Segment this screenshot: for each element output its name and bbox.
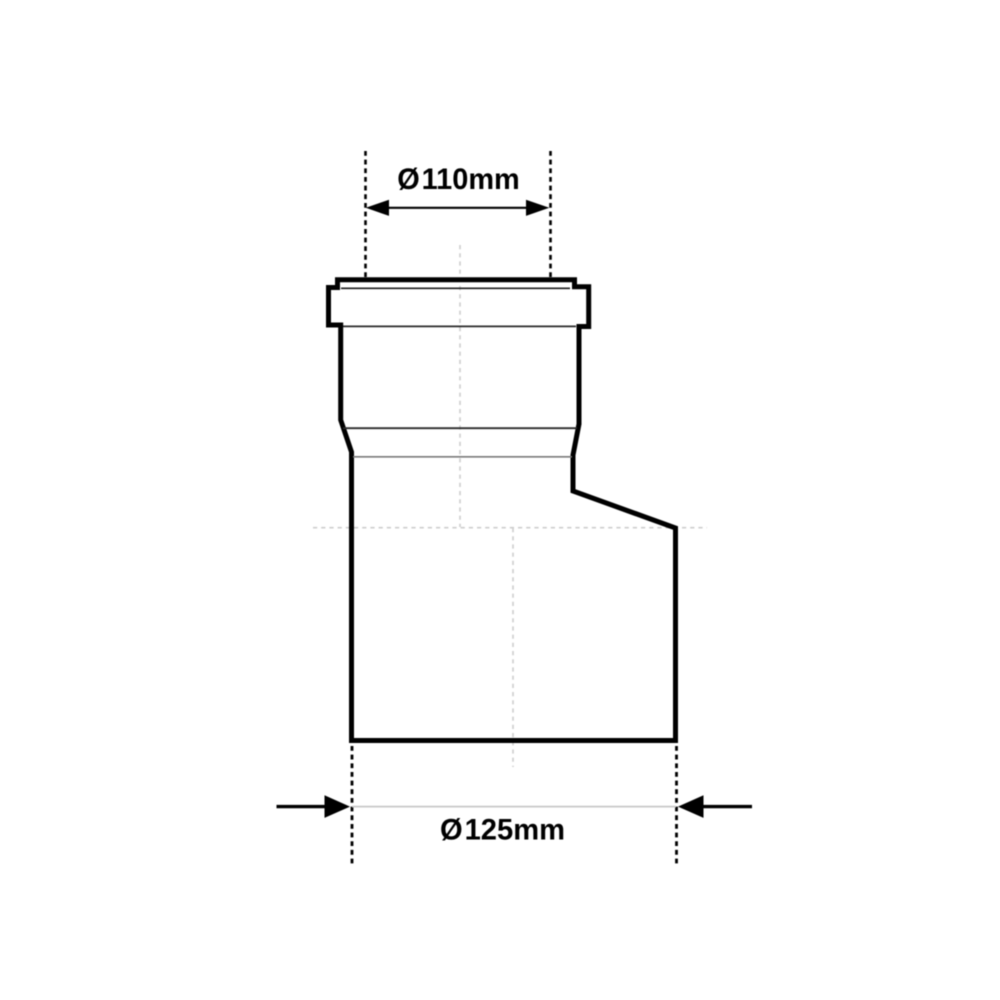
svg-text:Ø125mm: Ø125mm <box>440 813 565 846</box>
svg-text:Ø110mm: Ø110mm <box>397 163 520 196</box>
